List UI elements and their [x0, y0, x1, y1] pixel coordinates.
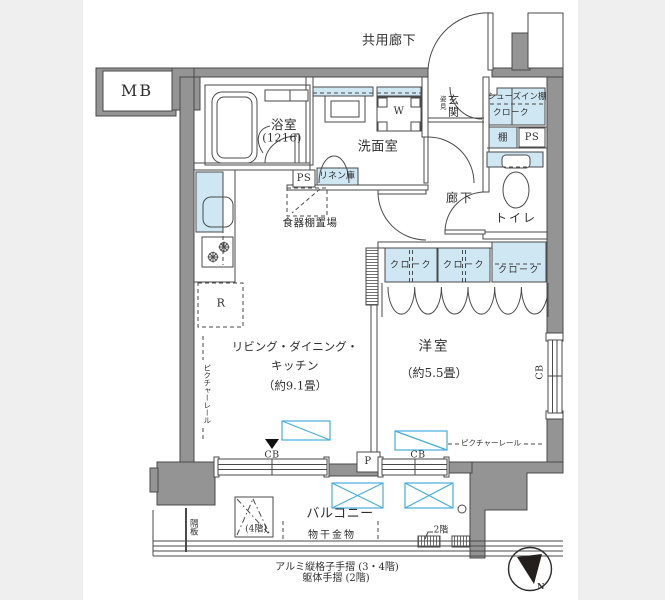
handrail-frame-label: 躯体手摺 (2階) — [302, 574, 369, 584]
picture-rail-left-label: ピクチャーレール — [203, 364, 211, 424]
bathroom-label: 浴室 — [271, 119, 297, 132]
toilet-bowl — [503, 172, 529, 208]
wall-left — [180, 77, 194, 462]
picture-rail-bottom-label: ピクチャーレール — [461, 439, 521, 447]
western-room-label: 洋室 — [419, 340, 450, 354]
bathroom-size-label: (1216) — [262, 133, 302, 144]
wall-balcony-block — [157, 462, 215, 505]
laundry-fitting-label: 物干金物 — [308, 531, 356, 541]
shoes-shelf-label: シューズイン棚 — [487, 93, 546, 102]
washer-pan-corner1 — [378, 98, 387, 107]
washer-label: W — [394, 107, 405, 117]
vanity-mirror-strip — [313, 87, 373, 96]
wall-toilet-bottom — [483, 232, 547, 239]
fridge-label: R — [217, 298, 226, 309]
washer-pan-corner3 — [378, 122, 387, 131]
washer-pan-corner2 — [411, 98, 420, 107]
kitchen-counter-highlight — [196, 172, 223, 232]
toilet-door-leaf — [445, 230, 485, 234]
balcony-label: バルコニー — [306, 508, 373, 521]
stove — [202, 237, 233, 267]
rail-floor-label: 2階 — [434, 527, 449, 536]
north-label: N — [537, 582, 545, 590]
entrance-label: 玄関 — [448, 94, 459, 118]
wall-bath-kitchen — [194, 163, 310, 170]
closet3-label: クローク — [498, 267, 540, 276]
ps-left-label: PS — [297, 174, 312, 184]
wall-top — [194, 68, 428, 77]
floorplan-page: 共用廊下 MB 浴室 (1216) 洗面室 W 玄関 姿見 シューズイン棚 クロ… — [0, 0, 665, 600]
cb-ldk-label: CB — [264, 450, 279, 460]
hatched-wall-strip — [366, 248, 378, 305]
washroom-door-leaf — [424, 137, 428, 183]
washer-shelf-strip — [377, 87, 421, 96]
toilet-tank — [502, 155, 530, 168]
linen-label: リネン庫 — [319, 173, 355, 182]
ldk-size-label: （約9.1畳） — [263, 380, 327, 392]
toilet-label: トイレ — [495, 212, 537, 224]
ldk-door-leaf — [378, 190, 426, 194]
shoes-cloak-label: クローク — [493, 109, 529, 118]
wall-bottom-right — [447, 462, 472, 473]
cb-side-label: CB — [535, 364, 545, 379]
mb-label: MB — [121, 83, 153, 99]
partition-board-label: 隔板 — [189, 519, 198, 536]
washroom-label: 洗面室 — [358, 141, 399, 154]
hatch-floor-label: (4階) — [245, 526, 267, 535]
closet3-box — [492, 242, 546, 282]
hallway-label: 廊下 — [446, 192, 474, 204]
wall-right-lower — [547, 413, 563, 463]
bath-counter — [265, 90, 308, 101]
balcony-faucet — [458, 505, 466, 513]
wall-balcony-block-arm — [150, 468, 158, 492]
ldk-label-line2: キッチン — [271, 360, 319, 372]
wall-right-upper — [547, 77, 563, 340]
ps-right-label: PS — [525, 133, 540, 143]
handrail-aluminum-label: アルミ縦格子手摺 (3・4階) — [275, 563, 399, 573]
closet2-label: クローク — [443, 262, 485, 271]
western-size-label: （約5.5畳） — [400, 367, 467, 379]
common-corridor-label: 共用廊下 — [362, 35, 416, 48]
bathtub — [212, 92, 257, 163]
cb-western-label: CB — [410, 450, 425, 460]
wall-top-column — [512, 33, 530, 70]
exterior-corner-box — [528, 13, 563, 68]
shelf-label: 棚 — [498, 133, 508, 143]
washer-pan-corner4 — [411, 122, 420, 131]
wall-ldk-western-divider — [371, 305, 377, 462]
closet1-label: クローク — [390, 262, 432, 271]
ldk-label-line1: リビング・ダイニング・ — [232, 341, 359, 353]
wall-washroom-right — [422, 77, 428, 137]
pole-label: P — [364, 457, 371, 467]
cupboard-area-label: 食器棚置場 — [283, 218, 338, 229]
entrance-door-leaf — [488, 13, 493, 70]
mirror-label: 姿見 — [439, 96, 446, 111]
